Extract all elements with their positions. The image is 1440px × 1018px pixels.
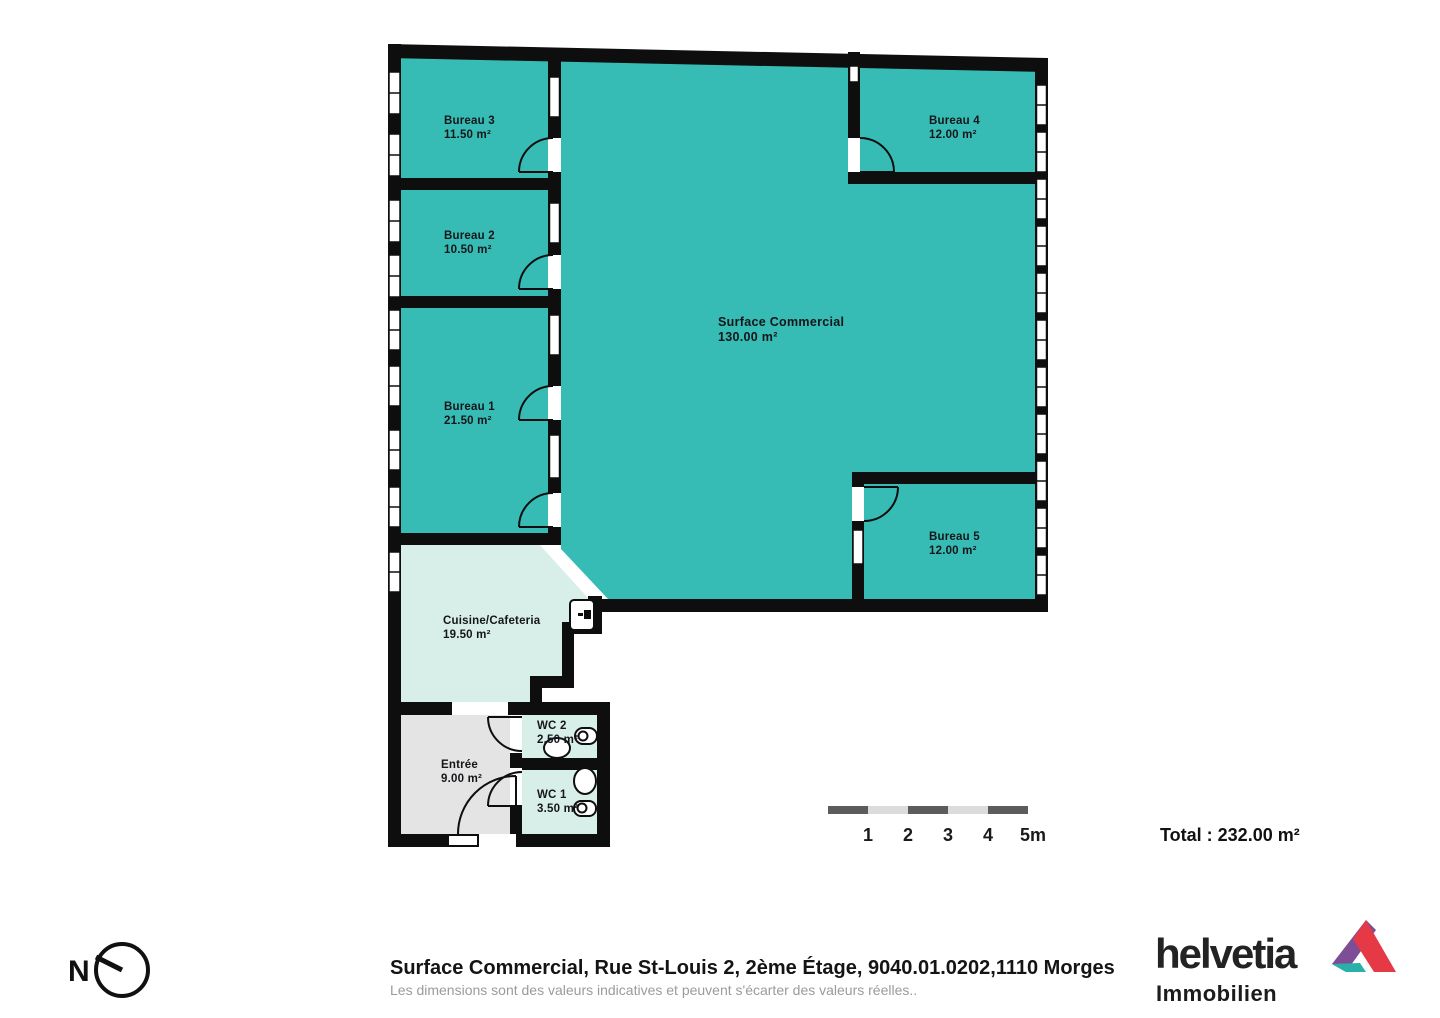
room-label-cuisine-area: 19.50 m² (443, 629, 491, 641)
room-label-wc1-area: 3.50 m² (537, 803, 578, 815)
windows-right-wall (1036, 85, 1047, 595)
scale-label-3: 3 (943, 825, 953, 845)
address-line: Surface Commercial, Rue St-Louis 2, 2ème… (390, 956, 1115, 979)
wall-b1-cuisine (388, 533, 561, 545)
north-compass: N (68, 944, 148, 996)
wall-wc1-wc2 (522, 758, 610, 770)
wall-b4-bottom (848, 172, 1035, 184)
disclaimer-line: Les dimensions sont des valeurs indicati… (390, 982, 917, 998)
room-label-bureau1-area: 21.50 m² (444, 415, 492, 427)
room-label-bureau4-name: Bureau 4 (929, 115, 980, 127)
room-label-bureau3-name: Bureau 3 (444, 115, 495, 127)
scale-label-2: 2 (903, 825, 913, 845)
wall-surface-bottom (596, 599, 1048, 612)
room-label-wc2-area: 2.50 m² (537, 734, 578, 746)
scale-seg-5 (988, 806, 1028, 814)
scale-seg-4 (948, 806, 988, 814)
room-label-bureau2-name: Bureau 2 (444, 230, 495, 242)
brand-name: helvetia (1155, 930, 1298, 977)
brand-logo: helvetia Immobilien (1155, 920, 1396, 1006)
kitchen-sink (570, 600, 594, 630)
compass-needle (96, 957, 122, 970)
total-area-label: Total : 232.00 m² (1160, 825, 1300, 845)
floor-plan-canvas: Bureau 3 11.50 m² Bureau 2 10.50 m² Bure… (0, 0, 1440, 1018)
room-label-bureau3-area: 11.50 m² (444, 129, 491, 141)
room-label-bureau5-area: 12.00 m² (929, 545, 977, 557)
scale-bar: 1 2 3 4 5m (828, 806, 1046, 845)
scale-label-4: 4 (983, 825, 993, 845)
room-label-entree-area: 9.00 m² (441, 773, 482, 785)
wc1-toilet (574, 768, 596, 794)
wall-b2-b1 (388, 296, 561, 308)
room-label-bureau2-area: 10.50 m² (444, 244, 492, 256)
room-bureau2-fill (401, 190, 548, 296)
room-label-wc1-name: WC 1 (537, 789, 567, 801)
scale-seg-1 (828, 806, 868, 814)
wall-b3-b2 (388, 178, 561, 190)
scale-label-1: 1 (863, 825, 873, 845)
compass-north-label: N (68, 955, 90, 988)
scale-seg-3 (908, 806, 948, 814)
room-label-bureau5-name: Bureau 5 (929, 531, 980, 543)
room-label-bureau1-name: Bureau 1 (444, 401, 495, 413)
wall-wc-right (597, 702, 610, 847)
brand-division: Immobilien (1156, 981, 1277, 1006)
room-label-bureau4-area: 12.00 m² (929, 129, 977, 141)
wall-b5-top (852, 472, 1035, 484)
room-label-entree-name: Entrée (441, 759, 478, 771)
scale-label-5: 5m (1020, 825, 1046, 845)
room-label-surface-area: 130.00 m² (718, 330, 778, 344)
passage-cuisine-entree (452, 702, 508, 715)
footer: Surface Commercial, Rue St-Louis 2, 2ème… (390, 956, 1115, 998)
room-label-surface-name: Surface Commercial (718, 315, 844, 329)
floorplan-page: Bureau 3 11.50 m² Bureau 2 10.50 m² Bure… (0, 0, 1440, 1018)
windows-left-wall (389, 72, 400, 592)
room-label-wc2-name: WC 2 (537, 720, 567, 732)
scale-seg-2 (868, 806, 908, 814)
wc2-sink (575, 728, 597, 744)
room-label-cuisine-name: Cuisine/Cafeteria (443, 615, 541, 627)
brand-triangle-icon (1332, 920, 1396, 972)
